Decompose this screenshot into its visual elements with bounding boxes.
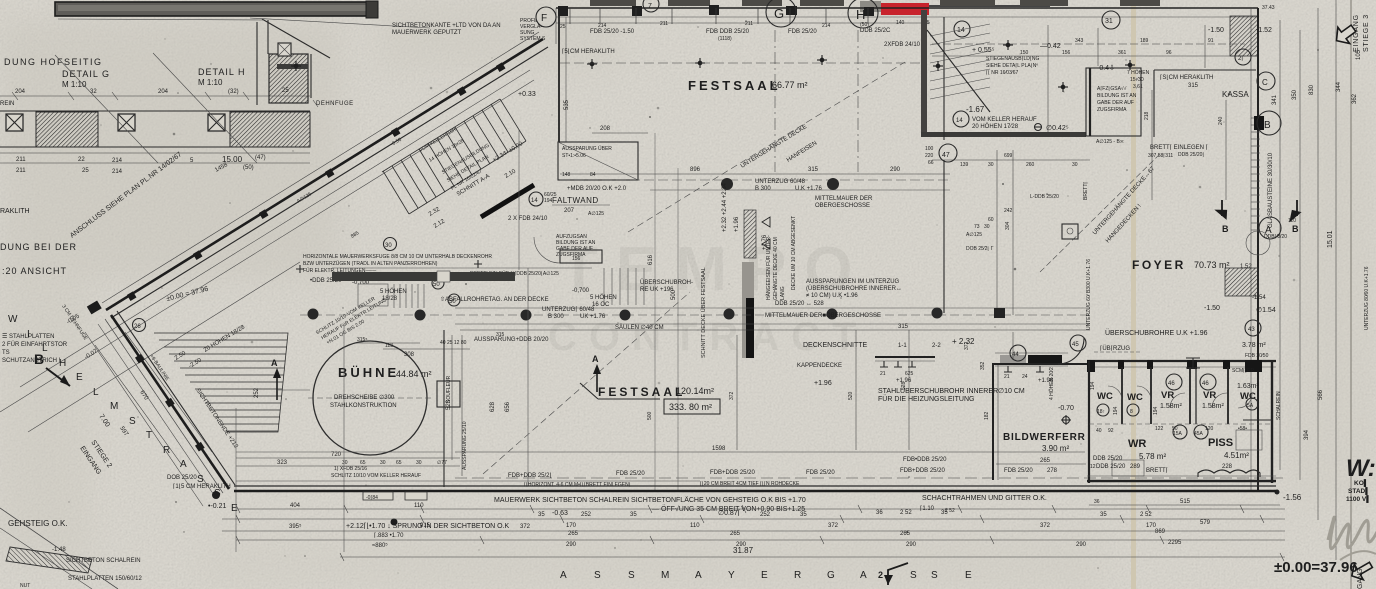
svg-text:8: 8 (1130, 409, 1133, 415)
svg-text:A∅125: A∅125 (966, 232, 982, 238)
svg-text:315: 315 (496, 332, 505, 338)
svg-text:WC: WC (1097, 391, 1113, 402)
svg-text:CONTRACT: CONTRACT (548, 315, 868, 359)
svg-text:MITTELMAUER DER■OBERGESCHOSSE: MITTELMAUER DER■OBERGESCHOSSE (765, 313, 881, 319)
svg-text:1.58m²: 1.58m² (1202, 403, 1224, 410)
svg-text:30: 30 (984, 224, 990, 230)
svg-text:315: 315 (898, 324, 909, 330)
svg-text:E: E (76, 372, 83, 383)
svg-text:616: 616 (648, 254, 654, 265)
svg-text:2-2: 2-2 (932, 343, 941, 349)
svg-text:B: B (1222, 224, 1229, 234)
svg-text:46: 46 (1168, 381, 1175, 387)
svg-text:31.87: 31.87 (733, 546, 754, 555)
svg-text:25: 25 (560, 24, 566, 30)
svg-text:252: 252 (581, 512, 592, 518)
svg-text:UNTERZUG 60/48: UNTERZUG 60/48 (755, 179, 806, 185)
svg-text:+0.33: +0.33 (518, 91, 536, 98)
svg-text:47: 47 (942, 152, 950, 159)
svg-text:204: 204 (15, 89, 26, 95)
svg-text:66.77 m²: 66.77 m² (772, 80, 808, 90)
svg-text:DDB 25/20 ↔ 528: DDB 25/20 ↔ 528 (775, 301, 824, 307)
svg-text:⌈⌊ NR 16⁄03⁄67: ⌈⌊ NR 16⁄03⁄67 (986, 70, 1018, 76)
svg-text:-1.50: -1.50 (1208, 27, 1224, 34)
svg-text:⌈1⌊5 CM HERAKLITH: ⌈1⌊5 CM HERAKLITH (173, 483, 231, 490)
svg-text:+MDB 20/20 O.K +2.0: +MDB 20/20 O.K +2.0 (567, 186, 627, 192)
svg-text:214: 214 (112, 158, 123, 164)
svg-text:A: A (180, 459, 187, 470)
svg-text:46: 46 (1202, 381, 1209, 387)
svg-text:U.K +1.76: U.K +1.76 (795, 186, 823, 192)
svg-text:A: A (860, 570, 867, 581)
svg-text:DUNG HOFSEITIG: DUNG HOFSEITIG (4, 57, 103, 67)
svg-text::20 ANSICHT: :20 ANSICHT (2, 266, 67, 276)
svg-text:37.43: 37.43 (1262, 5, 1275, 11)
svg-text:FDB+DDB 25/20: FDB+DDB 25/20 (710, 470, 756, 476)
svg-text:GEHÄNGTE DECKE 40 CM: GEHÄNGTE DECKE 40 CM (772, 237, 779, 300)
svg-text:FDB+DDB 25/2⌊: FDB+DDB 25/2⌊ (508, 472, 552, 479)
svg-text:36: 36 (876, 510, 883, 516)
svg-text:-1.56: -1.56 (1283, 493, 1302, 502)
svg-text:120.14m²: 120.14m² (676, 386, 714, 396)
svg-text:+2.32 +2.44 +2.34: +2.32 +2.44 +2.34 (722, 182, 728, 232)
svg-text:84: 84 (590, 172, 596, 178)
svg-text:FESTSAAL: FESTSAAL (598, 385, 685, 399)
svg-text:148: 148 (562, 172, 571, 178)
svg-text:A∅125 - B≍: A∅125 - B≍ (1096, 139, 1124, 145)
svg-text:AUSSPARUNG ÜBER: AUSSPARUNG ÜBER (562, 145, 612, 152)
svg-text:-1.52: -1.52 (1256, 27, 1272, 34)
svg-text:H: H (856, 7, 865, 22)
svg-text:1-1: 1-1 (898, 343, 907, 349)
svg-text:STIEGE 3: STIEGE 3 (1363, 14, 1370, 52)
svg-text:SOUFLEUR: SOUFLEUR (446, 375, 452, 403)
svg-text:SCHNITT DECKE ÜBER FESTSAAL: SCHNITT DECKE ÜBER FESTSAAL (700, 267, 707, 358)
svg-text:156: 156 (1062, 50, 1071, 56)
svg-text:150: 150 (1020, 50, 1029, 56)
svg-text:1100 V▌: 1100 V▌ (1346, 495, 1371, 503)
svg-text:T: T (146, 430, 152, 441)
svg-text:ZUGSFIRMA: ZUGSFIRMA (1097, 107, 1127, 113)
svg-text:-0.70: -0.70 (1058, 405, 1074, 412)
svg-text:-0.63: -0.63 (552, 510, 568, 517)
svg-text:A: A (695, 570, 702, 581)
svg-text:628: 628 (490, 401, 496, 412)
svg-text:341: 341 (1272, 94, 1278, 105)
svg-text:36: 36 (1094, 499, 1100, 505)
svg-text:372: 372 (964, 341, 970, 350)
svg-text:189: 189 (1140, 38, 1149, 44)
svg-text:BRETT⌈ EINLEGEN ⌈: BRETT⌈ EINLEGEN ⌈ (1150, 144, 1208, 151)
svg-text:896: 896 (690, 167, 701, 173)
svg-text:30: 30 (380, 460, 386, 466)
svg-text:92: 92 (1108, 428, 1114, 434)
svg-text:110: 110 (690, 523, 700, 529)
svg-text:SCHUTZANSTRICH !: SCHUTZANSTRICH ! (2, 358, 61, 364)
svg-text:315: 315 (1188, 83, 1199, 89)
svg-text:S: S (931, 570, 938, 581)
svg-text:25: 25 (82, 168, 89, 174)
svg-text:30: 30 (1072, 162, 1078, 168)
svg-text:5A: 5A (1247, 403, 1254, 409)
svg-text:ST•1:•5.06: ST•1:•5.06 (562, 153, 586, 159)
svg-text:AUSSPARUNG 25/10: AUSSPARUNG 25/10 (462, 421, 468, 470)
svg-text:242: 242 (1004, 208, 1013, 214)
svg-text:DECKE UM 10 CM ABGESENKT: DECKE UM 10 CM ABGESENKT (791, 216, 797, 290)
svg-text:18/28: 18/28 (382, 296, 398, 302)
svg-text:⌈⌊HORIZONT. 4-6 CM M•⌈⌊⌈BRETT: ⌈⌊HORIZONT. 4-6 CM M•⌈⌊⌈BRETT EINLEGEN⌊ (524, 482, 631, 488)
svg-text:⌈5⌊CM HERAKLITH: ⌈5⌊CM HERAKLITH (562, 48, 615, 55)
svg-text:16 OC: 16 OC (592, 302, 610, 308)
svg-text:5 HÖHEN: 5 HÖHEN (380, 288, 407, 295)
svg-text:MAUERWERK GEPUTZT: MAUERWERK GEPUTZT (392, 30, 462, 36)
svg-text:E: E (231, 503, 238, 514)
svg-text:DUNG BEI DER: DUNG BEI DER (0, 242, 77, 252)
svg-text:⌈1.10: ⌈1.10 (920, 505, 935, 512)
svg-text:SCHLITZ 10/10 VOM KELLER HERAU: SCHLITZ 10/10 VOM KELLER HERAUF (331, 473, 421, 479)
svg-text:R: R (794, 570, 801, 581)
svg-text:45: 45 (1072, 342, 1079, 348)
svg-text:DDB 25/20⌊: DDB 25/20⌊ (1178, 152, 1204, 158)
svg-text:B: B (1264, 120, 1271, 131)
svg-text:625: 625 (905, 371, 914, 377)
svg-text:31: 31 (1105, 18, 1113, 25)
svg-text:+2.12⌈⌊•1.70 ↓ SPRUNG IN DER: +2.12⌈⌊•1.70 ↓ SPRUNG IN DER SICHTBETON … (346, 522, 510, 530)
svg-text:372: 372 (520, 524, 531, 530)
svg-text:2XFDB 24/10: 2XFDB 24/10 (884, 42, 921, 48)
svg-text:HORIZONTALE MAUERWERKSFUGE 8/8: HORIZONTALE MAUERWERKSFUGE 8/8 CM 10 CM … (303, 254, 492, 260)
svg-text:⌈.883 •1.70: ⌈.883 •1.70 (374, 532, 404, 539)
svg-text:VR: VR (1203, 390, 1216, 401)
svg-text:228: 228 (1222, 464, 1233, 470)
svg-text:ÜBERSCHUBROHRE U.K +1.96: ÜBERSCHUBROHRE U.K +1.96 (1105, 329, 1208, 337)
svg-text:18↑: 18↑ (1097, 409, 1105, 415)
svg-text:BÜHNE: BÜHNE (338, 365, 399, 380)
svg-text:F: F (541, 13, 547, 24)
svg-text:372: 372 (828, 523, 839, 529)
svg-text:-1.50: -1.50 (1204, 305, 1220, 312)
svg-text:B 300: B 300 (548, 314, 564, 320)
svg-text:44.84 m²: 44.84 m² (396, 369, 432, 379)
svg-text:30: 30 (988, 162, 994, 168)
svg-text:DECKENSCHNITTE: DECKENSCHNITTE (803, 342, 868, 349)
svg-text:214: 214 (112, 169, 123, 175)
svg-text:∅1.54: ∅1.54 (1256, 307, 1276, 314)
svg-text:528: 528 (446, 399, 452, 410)
svg-text:FDB 25/20 -1.50: FDB 25/20 -1.50 (590, 29, 635, 35)
svg-text:100: 100 (925, 146, 934, 152)
svg-text:SICHTBETONKANTE +LTD VON DA A: SICHTBETONKANTE +LTD VON DA AN (392, 23, 501, 29)
svg-text:343: 343 (1075, 38, 1084, 44)
svg-text:∅0.87⌈: ∅0.87⌈ (718, 509, 741, 517)
svg-text:289: 289 (1130, 464, 1141, 470)
svg-text:139: 139 (960, 162, 969, 168)
svg-text:DREHSCHEIBE ∅300: DREHSCHEIBE ∅300 (334, 394, 395, 401)
svg-text:265: 265 (730, 531, 741, 537)
svg-text:21: 21 (1004, 374, 1010, 380)
svg-text:528: 528 (901, 381, 907, 390)
svg-text:211: 211 (660, 21, 668, 27)
svg-text:A: A (560, 570, 567, 581)
svg-text:211: 211 (745, 21, 753, 27)
svg-text:5 HÖHEN: 5 HÖHEN (590, 294, 617, 301)
svg-text:S: S (628, 570, 635, 581)
svg-text:7: 7 (648, 3, 652, 10)
svg-text:35: 35 (1100, 512, 1107, 518)
svg-text:E: E (761, 570, 768, 581)
svg-text:265: 265 (900, 531, 911, 537)
svg-text:43: 43 (1248, 327, 1255, 333)
svg-text:DDB⌈⁄8/20: DDB⌈⁄8/20 (1264, 234, 1287, 240)
svg-text:2 52: 2 52 (1140, 512, 1152, 518)
svg-text:DOB 25⁄2⌊ Γ: DOB 25⁄2⌊ Γ (966, 246, 994, 252)
svg-text:1) XFDB 25/16: 1) XFDB 25/16 (334, 466, 367, 472)
svg-text:GABE DER AUF: GABE DER AUF (1097, 100, 1134, 106)
svg-text:∅77: ∅77 (437, 460, 447, 466)
svg-text:308: 308 (404, 352, 415, 358)
svg-text:SCHACHTRAHMEN UND GITTER O.K.: SCHACHTRAHMEN UND GITTER O.K. (922, 495, 1047, 502)
svg-text:-0,700: -0,700 (572, 288, 590, 294)
svg-text:204: 204 (158, 89, 169, 95)
svg-text:MITTELMAUER DER: MITTELMAUER DER (815, 196, 873, 202)
svg-text:1.63m²: 1.63m² (1237, 383, 1259, 390)
svg-text:194: 194 (1153, 406, 1159, 415)
svg-text:7 HÖHEN: 7 HÖHEN (1127, 69, 1150, 76)
svg-text:L: L (93, 387, 99, 398)
svg-text:15¹⁄30: 15¹⁄30 (1130, 77, 1144, 83)
svg-text:AUSSPARUNG+DDB 20/20: AUSSPARUNG+DDB 20/20 (474, 337, 549, 343)
svg-text:50: 50 (1172, 426, 1178, 432)
svg-text:252: 252 (760, 512, 771, 518)
svg-text:194: 194 (1090, 381, 1096, 390)
svg-text:BILDUNG IST AN: BILDUNG IST AN (1097, 93, 1137, 99)
svg-text:156: 156 (572, 256, 581, 262)
svg-text:HÄNGEEISEN FÜR UNTER-: HÄNGEEISEN FÜR UNTER- (765, 235, 772, 300)
svg-text:R: R (163, 445, 170, 456)
svg-text:FESTSAAL: FESTSAAL (688, 78, 781, 93)
svg-text:240: 240 (1218, 116, 1224, 125)
svg-text:DETAIL H: DETAIL H (198, 67, 246, 77)
svg-text:304: 304 (1005, 221, 1011, 230)
svg-text:25: 25 (282, 88, 289, 94)
svg-text:SIEHE DETA⌈L PLA⌊Nº: SIEHE DETA⌈L PLA⌊Nº (986, 63, 1038, 69)
svg-text:FDB DDB 25/20: FDB DDB 25/20 (706, 29, 750, 35)
svg-text:4.51m²: 4.51m² (1224, 451, 1249, 460)
svg-text:30: 30 (416, 460, 422, 466)
svg-text:B: B (1292, 224, 1299, 234)
svg-text:290: 290 (906, 542, 917, 548)
svg-text:SCHALREIN: SCHALREIN (1276, 391, 1282, 420)
svg-text:⌈ÜB⌈RZUG: ⌈ÜB⌈RZUG (1100, 345, 1130, 352)
svg-text:35: 35 (630, 512, 637, 518)
svg-text:4 HÖHEN 20⁄2: 4 HÖHEN 20⁄2 (1048, 367, 1055, 400)
svg-text:(1118): (1118) (718, 36, 732, 42)
svg-text:535: 535 (564, 99, 570, 110)
svg-text:BRETT⌈: BRETT⌈ (1146, 467, 1168, 474)
svg-text:G: G (774, 6, 784, 21)
svg-text:W: W (8, 314, 18, 325)
svg-text:120: 120 (1205, 426, 1214, 432)
svg-text:-1.54: -1.54 (1252, 295, 1266, 301)
svg-text:E: E (965, 570, 972, 581)
svg-text:WR: WR (1128, 438, 1146, 450)
svg-text:AUSSPARUNGEN IM UNTERZUG: AUSSPARUNGEN IM UNTERZUG (806, 279, 900, 285)
svg-text:FDB+DDB 25/20: FDB+DDB 25/20 (900, 468, 946, 474)
svg-text:579: 579 (1200, 520, 1211, 526)
svg-text:DDB 25/2C: DDB 25/2C (860, 28, 891, 34)
svg-text:65: 65 (396, 460, 402, 466)
svg-text:C: C (1262, 78, 1268, 87)
svg-text:361: 361 (1118, 50, 1127, 56)
svg-text:182: 182 (984, 411, 990, 420)
svg-text:404: 404 (290, 503, 301, 509)
svg-text:REIN: REIN (0, 101, 14, 107)
svg-text:VOM KELLER HERAUF: VOM KELLER HERAUF (972, 117, 1037, 123)
svg-text:830: 830 (1309, 84, 1315, 95)
svg-text:OBERGESCHOSSE: OBERGESCHOSSE (815, 203, 870, 209)
svg-text:M: M (661, 570, 669, 581)
svg-text:265: 265 (1040, 458, 1051, 464)
svg-text:194: 194 (1113, 406, 1119, 415)
svg-text:40: 40 (1096, 428, 1102, 434)
svg-text:DDB 25/20: DDB 25/20 (1096, 464, 1126, 470)
svg-text:45A: 45A (1194, 431, 1204, 437)
svg-text:(50): (50) (243, 165, 254, 171)
svg-text:3,61: 3,61 (1133, 84, 1143, 90)
svg-text:323: 323 (277, 460, 288, 466)
svg-text:FDB 25/20: FDB 25/20 (806, 470, 835, 476)
svg-text:2 X FDB 24/10: 2 X FDB 24/10 (508, 216, 548, 222)
svg-text:3.78 m²: 3.78 m² (1242, 342, 1266, 349)
svg-text:NUT: NUT (20, 583, 30, 589)
svg-text:BZW UNTERZÜGEN (TRADL IN ALTEN: BZW UNTERZÜGEN (TRADL IN ALTEN PANZERROH… (303, 260, 438, 267)
svg-text:A⌈FZ⌊GSA√√: A⌈FZ⌊GSA√√ (1097, 85, 1127, 92)
svg-text:22: 22 (78, 157, 85, 163)
svg-text:290: 290 (890, 167, 901, 173)
svg-text:(ÜBERSCHUBROHRE INNERER↔: (ÜBERSCHUBROHRE INNERER↔ (806, 285, 902, 292)
svg-text:Y: Y (728, 570, 735, 581)
svg-text:DETAIL G: DETAIL G (62, 69, 110, 79)
svg-text:SCM⌈⌊ER: SCM⌈⌊ER (1232, 368, 1254, 374)
svg-text:STAHLKONSTRUKTION: STAHLKONSTRUKTION (330, 403, 397, 409)
svg-text:315: 315 (808, 167, 819, 173)
svg-text:≈880⁵: ≈880⁵ (372, 542, 388, 549)
svg-text:L-DDB 25/20: L-DDB 25/20 (1030, 194, 1059, 200)
svg-text:91: 91 (1208, 38, 1214, 44)
svg-text:-1.67: -1.67 (966, 105, 985, 114)
svg-text:GEHSTEIG O.K.: GEHSTEIG O.K. (8, 519, 68, 528)
svg-text:208: 208 (600, 126, 611, 132)
svg-text:FDB 20⁄50: FDB 20⁄50 (1245, 353, 1269, 359)
svg-text:DOB 25/20: DOB 25/20 (167, 475, 197, 481)
svg-text:•58•: •58• (1238, 426, 1247, 432)
svg-text:350: 350 (1292, 89, 1298, 100)
svg-text:14: 14 (956, 118, 963, 124)
svg-text:KAPPENDECKE: KAPPENDECKE (797, 363, 842, 369)
svg-text:252: 252 (254, 387, 260, 398)
svg-text:KO▌: KO▌ (1354, 479, 1368, 487)
svg-text:FDB•DDB 25/20: FDB•DDB 25/20 (903, 457, 947, 463)
svg-text:WC: WC (1240, 391, 1256, 402)
svg-text:⌈S⌊CM HERAKLITH: ⌈S⌊CM HERAKLITH (1160, 74, 1213, 81)
svg-text:170: 170 (1146, 523, 1157, 529)
svg-text:FALTWAND: FALTWAND (552, 196, 599, 205)
svg-text:BRETT⌈: BRETT⌈ (1083, 182, 1089, 200)
svg-text:333. 80 m²: 333. 80 m² (669, 402, 712, 412)
svg-text:15.01: 15.01 (1327, 230, 1334, 248)
svg-text:FDB 25/20: FDB 25/20 (788, 29, 817, 35)
svg-text:26: 26 (134, 324, 141, 330)
svg-text:•-0.21: •-0.21 (208, 503, 227, 510)
svg-text:194: 194 (544, 198, 553, 204)
svg-text:UNTERZUG 60⁄ B300 U.K+1.76: UNTERZUG 60⁄ B300 U.K+1.76 (1086, 259, 1092, 330)
svg-text:140: 140 (896, 20, 905, 26)
svg-text:207: 207 (564, 208, 575, 214)
svg-text:73: 73 (974, 224, 980, 230)
svg-text:352: 352 (980, 361, 986, 370)
svg-text:WC: WC (1127, 392, 1143, 403)
svg-text:362: 362 (1352, 93, 1358, 104)
svg-text:278: 278 (1047, 468, 1058, 474)
svg-text:372: 372 (1040, 523, 1051, 529)
svg-text:VR: VR (1161, 390, 1174, 401)
svg-text:20 HÖHEN 17⁄28: 20 HÖHEN 17⁄28 (972, 123, 1019, 130)
svg-text:1.58m²: 1.58m² (1160, 403, 1182, 410)
svg-text:122: 122 (1155, 426, 1164, 432)
svg-text:M: M (110, 401, 118, 412)
svg-text:218: 218 (1144, 111, 1150, 120)
svg-text:UNTERZUG 80⁄60 U.K+1.76: UNTERZUG 80⁄60 U.K+1.76 (1364, 266, 1370, 330)
svg-text:A: A (592, 354, 599, 364)
svg-text:TS: TS (2, 350, 10, 356)
svg-text:50: 50 (433, 282, 440, 288)
svg-text:5.78 m²: 5.78 m² (1139, 452, 1166, 461)
svg-text:21: 21 (880, 371, 886, 377)
svg-text:RE UK +196: RE UK +196 (640, 287, 674, 293)
svg-text:110: 110 (414, 503, 424, 509)
svg-text:☰ STAHLPLATTEN: ☰ STAHLPLATTEN (2, 333, 55, 340)
svg-text:32: 32 (90, 89, 97, 95)
svg-text:70.73 m²: 70.73 m² (1194, 260, 1230, 270)
svg-text:STAHLPLATTEN 150/60/12: STAHLPLATTEN 150/60/12 (68, 576, 142, 582)
svg-text:60: 60 (988, 217, 994, 223)
svg-text:290: 290 (566, 542, 577, 548)
svg-text:96: 96 (1166, 50, 1172, 56)
svg-text:372: 372 (729, 391, 735, 400)
svg-text:30: 30 (385, 243, 392, 249)
svg-text:FOYER: FOYER (1132, 258, 1186, 272)
svg-text:UK +1.76: UK +1.76 (580, 314, 606, 320)
svg-text:566: 566 (1318, 389, 1324, 400)
svg-text:≠ 10 CM) U.K •1.96: ≠ 10 CM) U.K •1.96 (806, 293, 858, 299)
svg-text:GANG: GANG (1357, 568, 1364, 589)
svg-text:395⁵: 395⁵ (289, 523, 302, 530)
svg-text:A: A (271, 358, 278, 368)
svg-text:DEHNFUGE: DEHNFUGE (316, 101, 354, 107)
svg-text:12: 12 (1090, 464, 1096, 470)
svg-text:211: 211 (16, 168, 26, 174)
svg-text:2 52: 2 52 (900, 510, 912, 516)
svg-text:W:: W: (1346, 455, 1376, 482)
svg-text:LANG: LANG (780, 286, 786, 300)
svg-text:500: 500 (647, 411, 653, 420)
svg-text:-0⌈84: -0⌈84 (366, 495, 378, 501)
svg-text:24: 24 (1022, 374, 1028, 380)
svg-text:SICHTBETON SCHALREIN: SICHTBETON SCHALREIN (66, 558, 141, 564)
svg-text:869: 869 (1155, 529, 1166, 535)
svg-text:113: 113 (385, 343, 393, 349)
svg-text:500: 500 (671, 289, 677, 300)
